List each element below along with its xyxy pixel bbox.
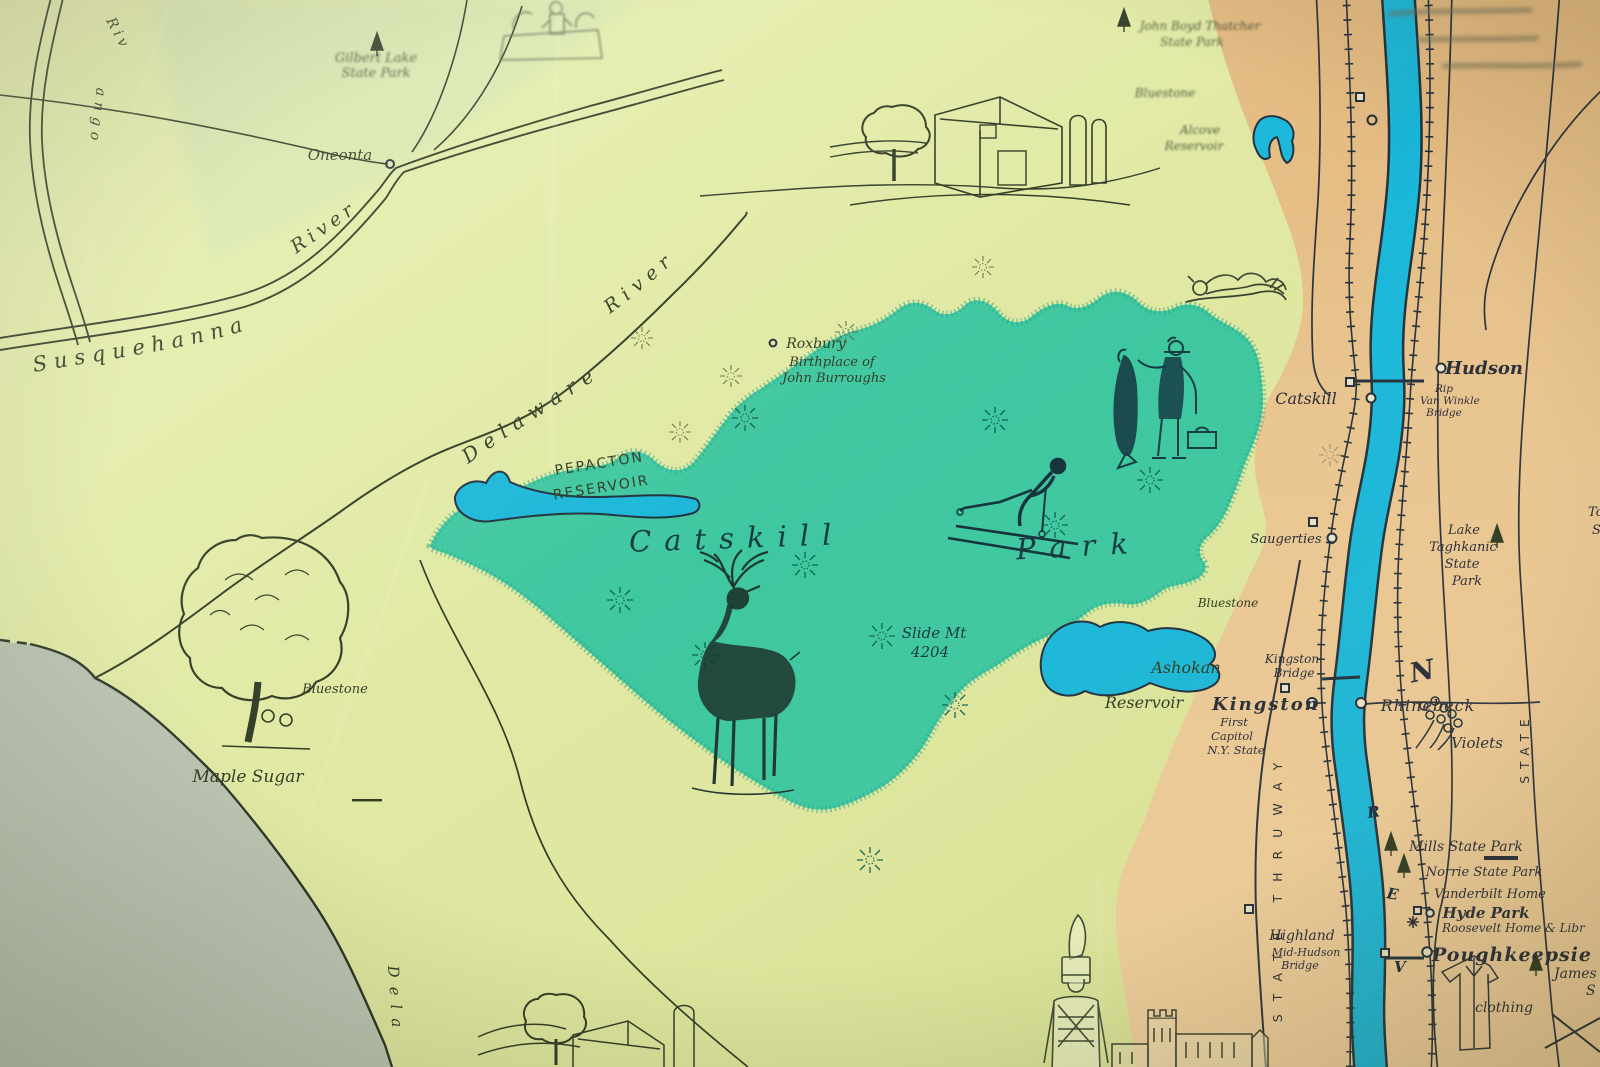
vignette-overlay — [0, 0, 1600, 1067]
catskill-map-artwork: Susquehanna River Delaware River Riv ang… — [0, 0, 1600, 1067]
map-photo: Susquehanna River Delaware River Riv ang… — [0, 0, 1600, 1067]
